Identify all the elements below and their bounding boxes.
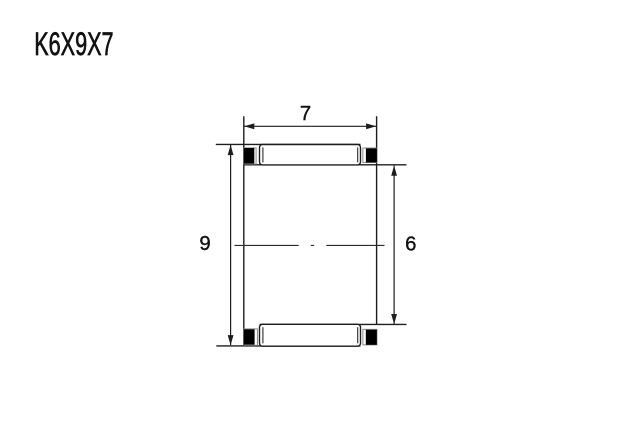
svg-text:K6X9X7: K6X9X7 — [34, 26, 113, 62]
svg-text:9: 9 — [199, 233, 210, 255]
svg-text:7: 7 — [300, 103, 311, 125]
svg-text:6: 6 — [405, 233, 416, 255]
